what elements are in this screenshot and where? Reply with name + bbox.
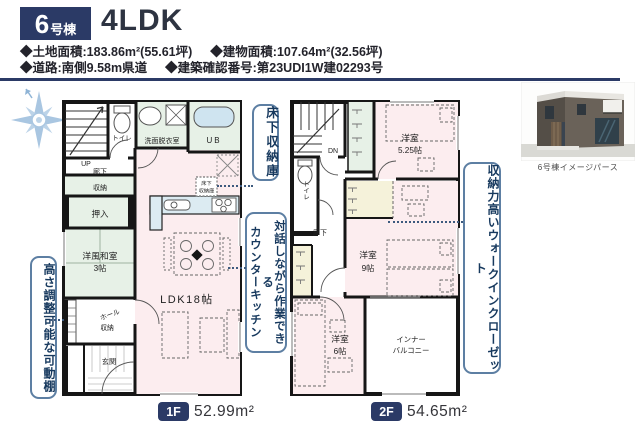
2f-label-room9: 洋室 xyxy=(359,249,377,260)
floor2-badge: 2F xyxy=(371,402,402,421)
1f-label-up: UP xyxy=(81,161,91,168)
2f-label-room9-size: 9帖 xyxy=(362,263,375,273)
callout-adjustable-shelf: 高さ調整可能な可動棚 xyxy=(30,256,57,399)
1f-underfloor-hatch: 床下 収納庫 xyxy=(196,177,217,196)
1f-bathtub xyxy=(194,107,234,127)
compass-icon xyxy=(8,84,70,150)
2f-label-room525-size: 5.25帖 xyxy=(398,145,422,155)
building-render-image xyxy=(521,82,635,161)
spec-line-2: ◆道路:南側9.58m県道 ◆建築確認番号:第23UDI1W建02293号 xyxy=(20,57,383,76)
callout-shelf-text: 高さ調整可能な可動棚 xyxy=(42,258,55,397)
flyer-page: 6 号棟 4LDK ◆土地面積:183.86m²(55.61坪) ◆建物面積:1… xyxy=(0,0,640,426)
2f-label-room6: 洋室 xyxy=(331,333,349,344)
2f-label-down: DN xyxy=(328,148,338,155)
building-number-badge: 6 号棟 xyxy=(20,7,91,40)
header-divider xyxy=(0,78,620,81)
connector-kitchen xyxy=(228,267,246,269)
floor1-badge: 1F xyxy=(158,402,189,421)
2f-label-balcony-1: インナー xyxy=(396,335,426,344)
1f-label-entrance: 玄関 xyxy=(102,357,116,366)
underfloor-hatch-label-1: 床下 xyxy=(201,179,211,187)
confirmation-number-text: ◆建築確認番号:第23UDI1W建02293号 xyxy=(165,57,383,76)
callout-kitchen-line1: 対話しながら作業できる xyxy=(261,214,285,351)
1f-label-washroom: 洗面脱衣室 xyxy=(145,136,180,145)
2f-left-closet xyxy=(293,245,312,297)
1f-label-toilet: トイレ xyxy=(112,135,132,142)
callout-wic-text: 収納力高いウォークインクローゼット xyxy=(474,164,499,372)
building-suffix: 号棟 xyxy=(50,10,76,38)
2f-room-6 xyxy=(293,297,365,394)
1f-label-japanese-room: 洋風和室 xyxy=(82,250,117,261)
2f-label-hallway: 廊下 xyxy=(313,228,327,237)
connector-wic xyxy=(388,221,463,223)
floor-plan-1f: 床下 収納庫 トイレ xyxy=(62,100,242,396)
callout-kitchen-line2: カウンターキッチン xyxy=(249,214,261,351)
plan-type-title: 4LDK xyxy=(101,4,183,38)
floor-plan-2f: DN トイレ 廊下 洋室 5.25帖 洋室 9帖 洋室 6帖 インナー バルコニ… xyxy=(290,100,460,396)
floor1-area-value: 52.99m² xyxy=(194,403,254,421)
1f-label-hallway: 廊下 xyxy=(93,167,107,176)
building-number: 6 xyxy=(35,11,49,37)
callout-walk-in-closet: 収納力高いウォークインクローゼット xyxy=(463,162,501,374)
1f-label-hall-storage: 収納 xyxy=(100,323,114,332)
1f-label-oshiire: 押入 xyxy=(91,209,109,219)
connector-shelf xyxy=(50,319,64,321)
callout-underfloor-text: 床下収納庫 xyxy=(264,106,277,179)
underfloor-hatch-label-2: 収納庫 xyxy=(199,187,215,195)
1f-toilet-fixture xyxy=(114,106,130,133)
connector-underfloor xyxy=(217,185,253,187)
2f-label-room6-size: 6帖 xyxy=(334,346,347,356)
callout-counter-kitchen: 対話しながら作業できる カウンターキッチン xyxy=(245,212,287,353)
callout-underfloor-storage: 床下収納庫 xyxy=(252,104,279,181)
1f-label-storage: 収納 xyxy=(93,183,107,192)
2f-label-room525: 洋室 xyxy=(401,132,419,143)
road-text: ◆道路:南側9.58m県道 xyxy=(20,57,147,76)
2f-label-balcony-2: バルコニー xyxy=(393,346,430,355)
2f-hall-closet xyxy=(348,102,374,172)
1f-label-bath: UB xyxy=(206,136,221,145)
1f-label-japanese-room-size: 3帖 xyxy=(94,263,107,273)
1f-label-ldk: LDK18帖 xyxy=(160,293,214,306)
render-caption: 6号棟イメージパース xyxy=(516,162,640,173)
floor2-area-value: 54.65m² xyxy=(407,403,467,421)
